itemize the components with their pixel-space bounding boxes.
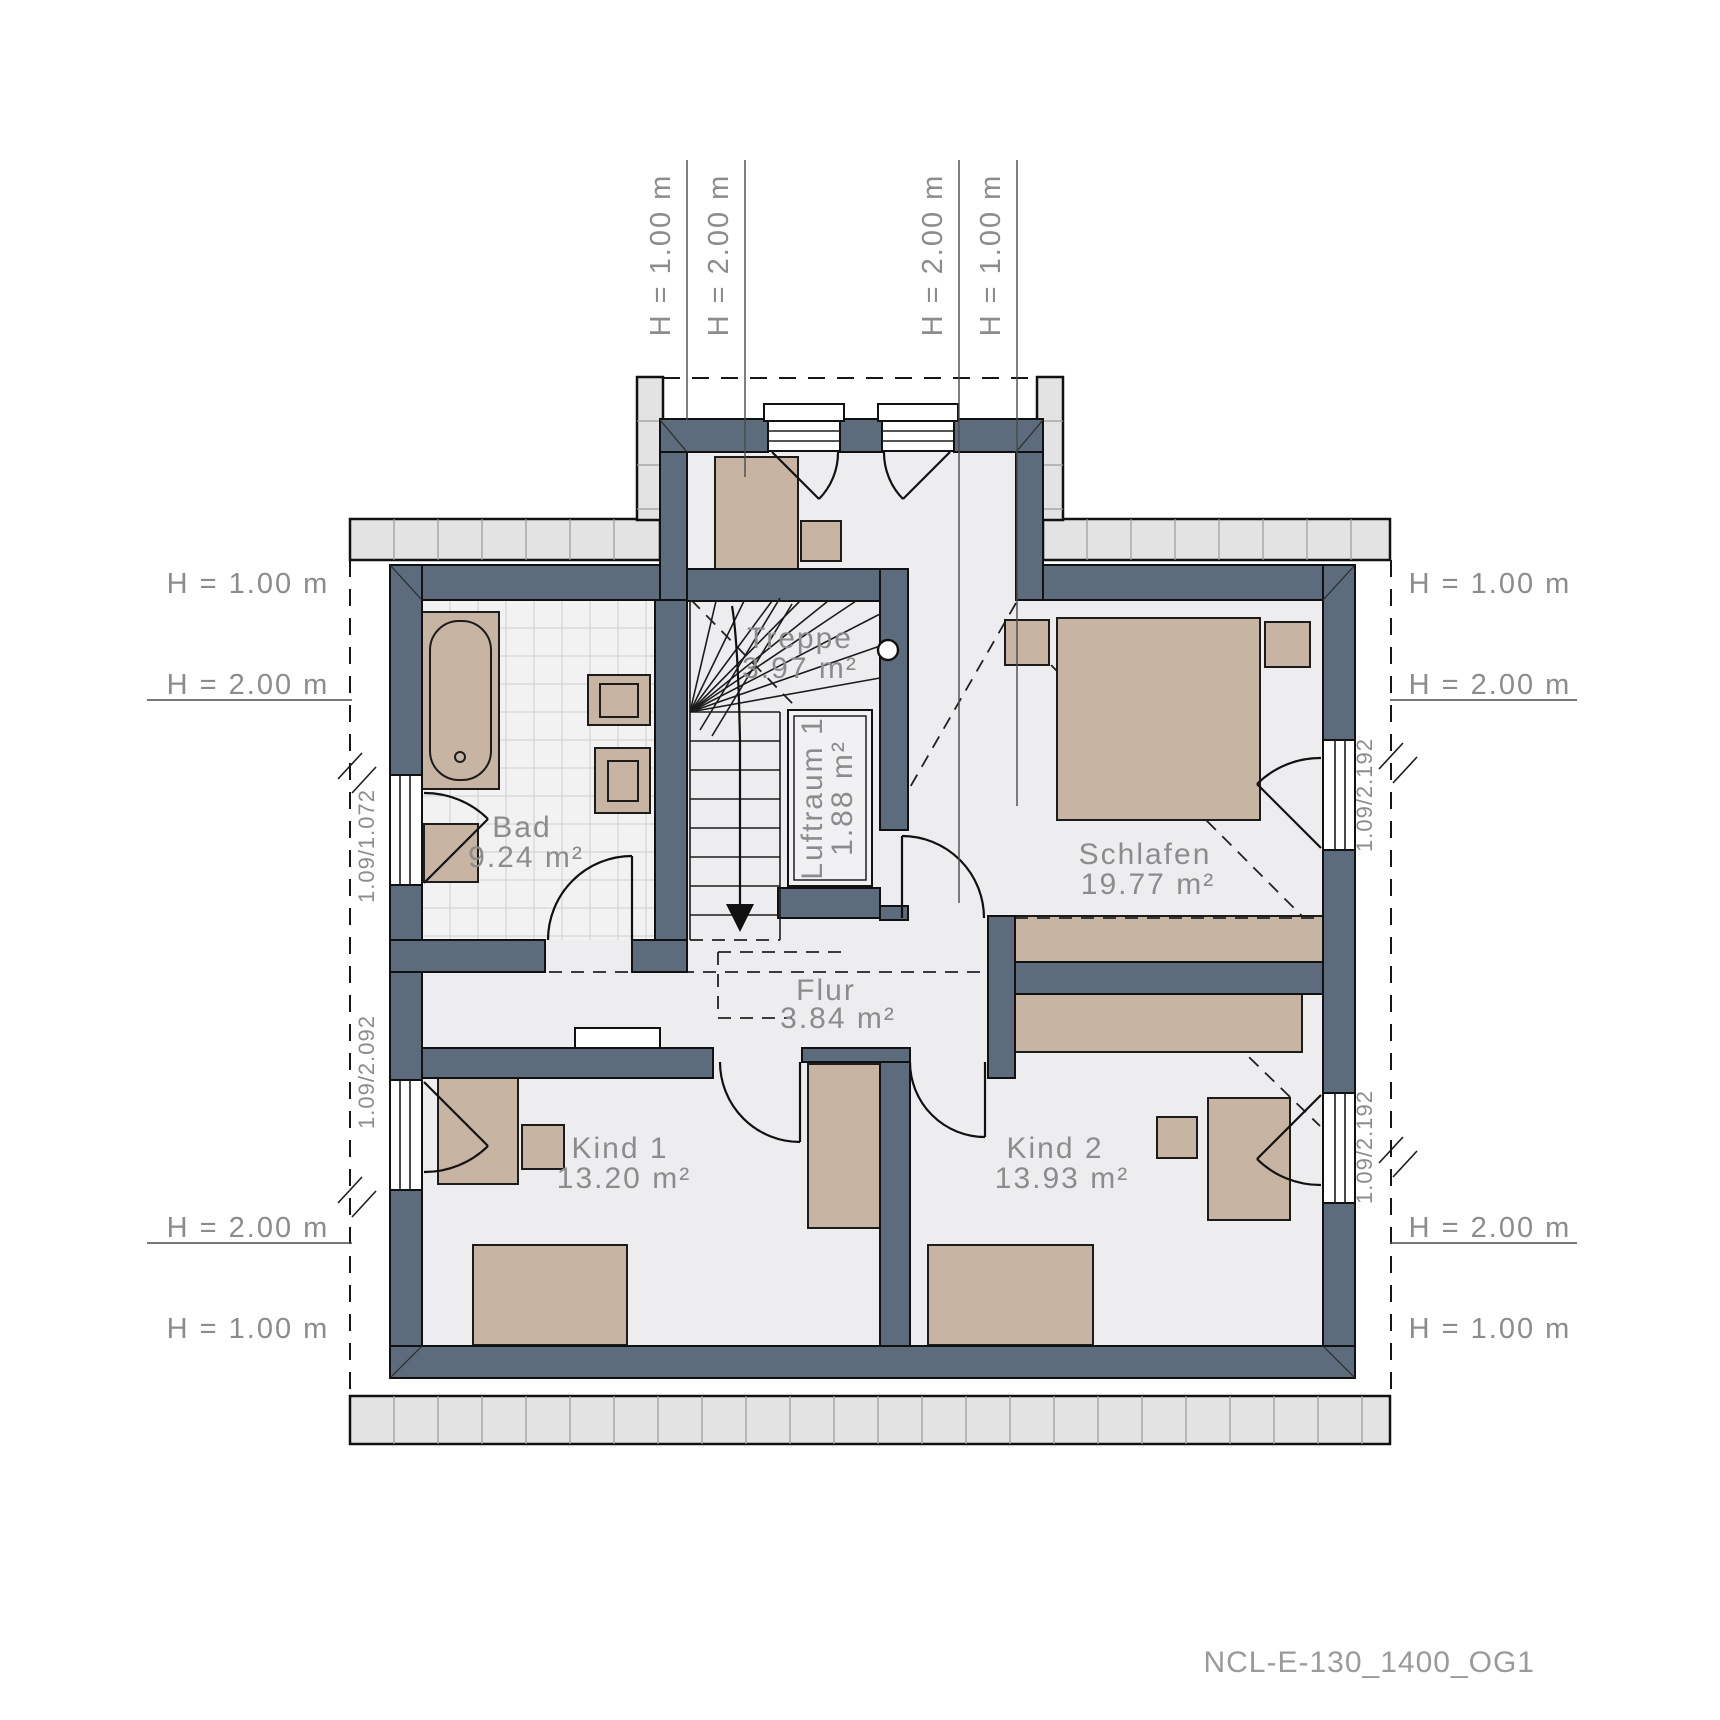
height-label-left-4: H = 1.00 m	[167, 1313, 330, 1345]
svg-text:9.24 m²: 9.24 m²	[468, 841, 584, 874]
dormer-desk	[715, 457, 798, 579]
height-label-top-3: H = 2.00 m	[917, 174, 949, 337]
svg-text:3.84 m²: 3.84 m²	[780, 1002, 896, 1035]
height-label-right-4: H = 1.00 m	[1409, 1313, 1572, 1345]
svg-text:1.88 m²: 1.88 m²	[826, 740, 859, 856]
plan-code: NCL-E-130_1400_OG1	[1203, 1646, 1535, 1679]
window-dim-bedroom: 1.09/2.192	[1352, 738, 1377, 852]
toilet	[595, 748, 650, 813]
kid2-desk	[1208, 1098, 1290, 1220]
hall-sideboard	[575, 1028, 660, 1048]
kid2-bed	[928, 1245, 1093, 1345]
height-label-right-1: H = 1.00 m	[1409, 568, 1572, 600]
svg-text:Schlafen: Schlafen	[1079, 838, 1212, 871]
kid2-chair	[1157, 1117, 1197, 1158]
svg-text:19.77 m²: 19.77 m²	[1081, 868, 1215, 901]
height-label-right-2: H = 2.00 m	[1409, 669, 1572, 701]
svg-text:Luftraum 1: Luftraum 1	[796, 716, 829, 879]
height-label-left-2: H = 2.00 m	[167, 669, 330, 701]
floor-plan-page: H = 1.00 m H = 2.00 m H = 2.00 m H = 1.0…	[0, 0, 1720, 1720]
stair-newel	[878, 640, 898, 660]
window-dim-kid2: 1.09/2.192	[1352, 1090, 1377, 1204]
svg-text:Kind 1: Kind 1	[571, 1132, 668, 1165]
window-dim-bath: 1.09/1.072	[354, 789, 379, 903]
height-label-top-1: H = 1.00 m	[645, 174, 677, 337]
svg-text:Kind 2: Kind 2	[1006, 1132, 1103, 1165]
window-dim-kid1: 1.09/2.092	[354, 1015, 379, 1129]
nightstand-left	[1005, 620, 1049, 665]
kid1-bed	[473, 1245, 627, 1345]
height-label-left-3: H = 2.00 m	[167, 1212, 330, 1244]
bathtub	[422, 612, 499, 789]
height-label-right-3: H = 2.00 m	[1409, 1212, 1572, 1244]
room-label-schlafen: Schlafen 19.77 m²	[1079, 838, 1216, 901]
dormer-chair	[801, 521, 841, 561]
svg-text:3.97 m²: 3.97 m²	[742, 652, 858, 685]
svg-text:Bad: Bad	[492, 811, 551, 844]
svg-text:Treppe: Treppe	[747, 622, 853, 655]
kid1-desk	[438, 1062, 518, 1184]
room-label-luftraum: Luftraum 1 1.88 m²	[796, 716, 859, 879]
height-label-top-2: H = 2.00 m	[703, 174, 735, 337]
svg-text:13.20 m²: 13.20 m²	[557, 1162, 691, 1195]
nightstand-right	[1265, 622, 1310, 667]
bedroom-bed	[1057, 618, 1260, 820]
svg-text:13.93 m²: 13.93 m²	[995, 1162, 1129, 1195]
room-label-treppe: Treppe 3.97 m²	[742, 622, 858, 685]
height-label-left-1: H = 1.00 m	[167, 568, 330, 600]
floor-plan-drawing: H = 1.00 m H = 2.00 m H = 2.00 m H = 1.0…	[0, 0, 1720, 1720]
height-label-top-4: H = 1.00 m	[975, 174, 1007, 337]
